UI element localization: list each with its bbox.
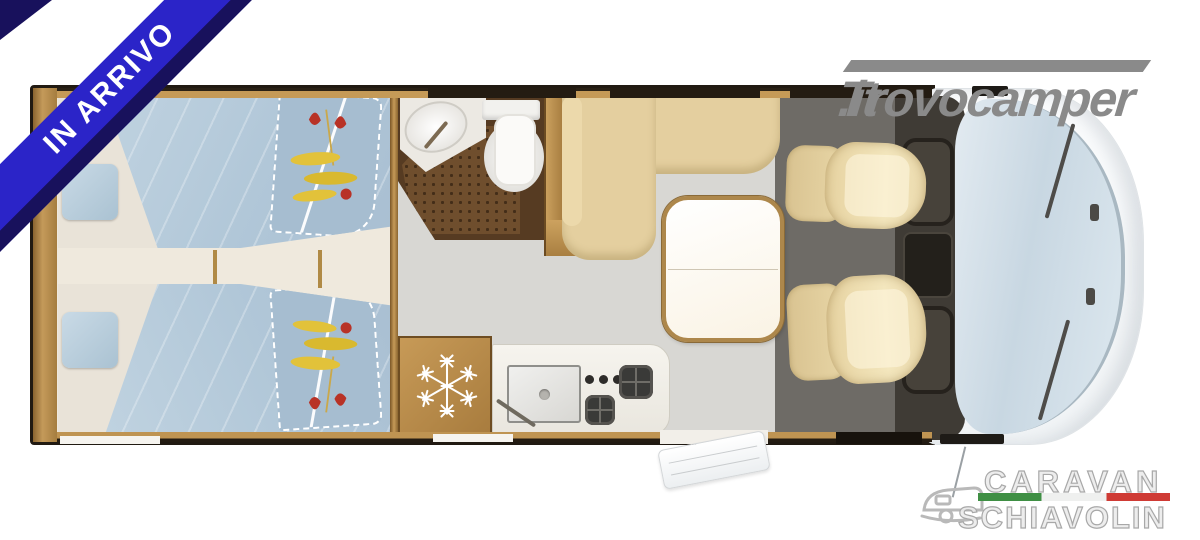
- listing-image: IN ARRIVO Trovocamper.it CARAVAN SCHIAVO…: [0, 0, 1200, 540]
- site-logo-name: Trovocamper: [836, 70, 1136, 128]
- site-logo-text: Trovocamper.it: [836, 70, 1187, 128]
- sofa-armrest: [562, 96, 582, 226]
- roof-detail: [940, 434, 1004, 444]
- cab-seat-driver: [785, 140, 928, 231]
- wiper-pivot: [1086, 288, 1095, 305]
- partition-wall: [390, 92, 398, 442]
- toilet-seat: [496, 116, 534, 184]
- stove-knob: [599, 375, 608, 384]
- table-leaf-split: [668, 269, 777, 270]
- seat-quilting: [844, 154, 911, 218]
- window: [433, 434, 513, 442]
- wiper-pivot: [1090, 204, 1099, 221]
- aisle-divider: [318, 250, 322, 288]
- cab-seat-passenger: [785, 272, 928, 387]
- window: [428, 88, 576, 98]
- snowflake-icon: [410, 346, 484, 426]
- stove-burner: [585, 395, 615, 425]
- dealer-name-line2: SCHIAVOLIN: [958, 502, 1167, 533]
- dining-table: [662, 196, 784, 342]
- site-logo: Trovocamper.it: [839, 34, 1184, 144]
- stove-burner: [619, 365, 653, 399]
- pillow: [62, 312, 118, 368]
- flower-embroidery-icon: [276, 97, 377, 233]
- bed-bottom: [58, 284, 390, 436]
- seat-quilting: [844, 288, 911, 369]
- sink-drain: [539, 389, 550, 400]
- window: [60, 436, 160, 444]
- dealer-logo: CARAVAN SCHIAVOLIN: [926, 466, 1194, 538]
- ribbon-shadow: [0, 0, 52, 40]
- flower-embroidery-icon: [276, 289, 377, 425]
- fridge: [398, 336, 492, 436]
- stove-knob: [585, 375, 594, 384]
- window: [610, 88, 760, 98]
- kitchen-counter: [492, 344, 670, 436]
- bed-foot-panel: [269, 283, 383, 432]
- aisle-divider: [213, 250, 217, 288]
- cab-door-seam: [836, 432, 922, 444]
- bed-foot-panel: [269, 91, 383, 240]
